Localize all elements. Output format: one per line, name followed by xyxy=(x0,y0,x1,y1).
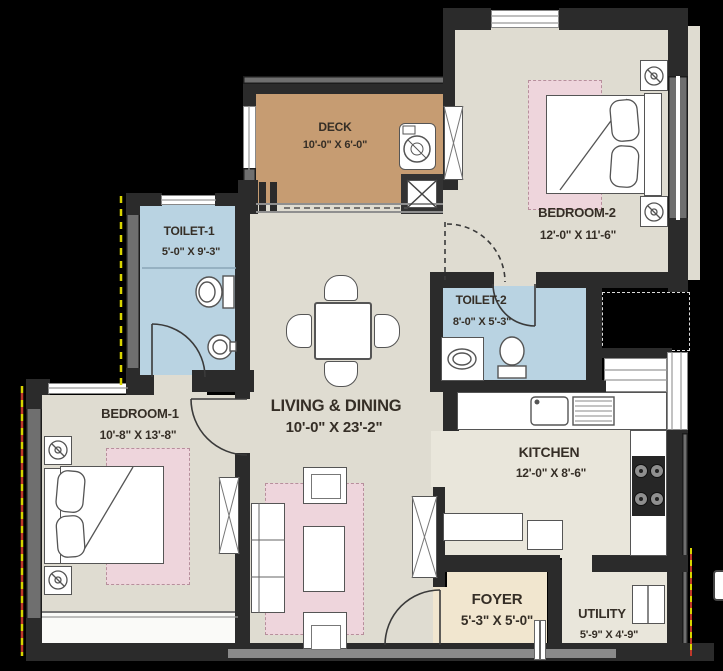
bedroom1-label: BEDROOM-1 xyxy=(101,407,179,420)
wall-segment xyxy=(602,348,672,358)
bedroom1-headboard xyxy=(44,468,61,564)
utility-window xyxy=(632,585,665,624)
bedroom2-bottom-wall xyxy=(536,272,688,288)
bedroom1-left-wall xyxy=(26,383,42,647)
toilet2-door-opening xyxy=(494,272,536,286)
wall-segment xyxy=(26,383,42,409)
kitchen-counter xyxy=(527,520,563,550)
cropped-marker-icon xyxy=(713,570,723,601)
utility-label: UTILITY xyxy=(578,607,626,620)
bedroom2-label: BEDROOM-2 xyxy=(538,206,616,219)
wall-segment xyxy=(126,193,140,215)
floor-trap-icon xyxy=(407,180,437,208)
floor-plan: DECK 10'-0" X 6'-0" BEDROOM-2 12'-0" X 1… xyxy=(0,0,723,671)
deck-dims: 10'-0" X 6'-0" xyxy=(303,140,367,151)
toilet2-right-wall xyxy=(586,284,602,384)
kitchen-counter xyxy=(443,513,523,541)
toilet2-label: TOILET-2 xyxy=(456,294,507,306)
main-door-leaf xyxy=(540,620,546,660)
dining-chair xyxy=(374,314,400,348)
foyer-top-wall xyxy=(433,555,560,572)
kitchen-right-window xyxy=(667,352,688,430)
armchair-cushion xyxy=(311,625,341,650)
nightstand xyxy=(44,436,72,465)
armchair-cushion xyxy=(311,474,341,499)
toilet2-counter xyxy=(441,337,484,381)
dining-chair xyxy=(324,275,358,301)
bedroom2-top-window xyxy=(491,10,559,28)
foyer-right-wall xyxy=(548,560,562,648)
dining-chair xyxy=(324,361,358,387)
living-label: LIVING & DINING xyxy=(271,398,402,415)
foyer-floor xyxy=(447,572,547,648)
bottom-wall-window xyxy=(228,649,616,658)
utility-door-opening xyxy=(562,553,592,573)
bedroom2-door-opening xyxy=(443,184,457,276)
bedroom2-bed xyxy=(546,95,646,194)
bedroom2-dims: 12'-0" X 11'-6" xyxy=(540,229,616,241)
utility-dims: 5'-9" X 4'-9" xyxy=(580,630,638,641)
slider-post xyxy=(270,182,277,213)
main-door-opening xyxy=(433,587,447,645)
kitchen-label: KITCHEN xyxy=(519,445,580,459)
kitchen-passage-floor xyxy=(431,431,445,487)
slider-post xyxy=(259,182,266,213)
bedroom2-headboard xyxy=(644,93,662,196)
wall-segment xyxy=(126,379,154,395)
kitchen-counter xyxy=(630,430,667,556)
foyer-dims: 5'-3" X 5'-0" xyxy=(461,614,533,628)
kitchen-dims: 12'-0" X 8'-6" xyxy=(516,467,586,479)
toilet1-left-wall xyxy=(126,193,140,391)
bedroom1-window-bay xyxy=(42,611,238,646)
utility-top-wall xyxy=(592,555,688,572)
deck-left-window xyxy=(243,106,256,170)
nightstand xyxy=(640,60,668,91)
bedroom1-dims: 10'-8" X 13'-8" xyxy=(100,429,177,441)
wardrobe-icon xyxy=(444,106,463,180)
washing-machine-icon xyxy=(399,123,436,170)
nightstand xyxy=(640,196,668,227)
coffee-table xyxy=(303,526,345,592)
toilet2-dims: 8'-0" X 5'-3" xyxy=(453,317,511,328)
wall-segment xyxy=(668,8,688,78)
bedroom1-bed xyxy=(60,466,164,564)
bedroom1-top-window xyxy=(48,383,128,394)
bedroom2-right-window xyxy=(668,76,688,220)
tv-unit xyxy=(412,496,437,578)
dining-chair xyxy=(286,314,312,348)
exterior-notch xyxy=(602,292,690,351)
living-west-wall xyxy=(235,193,250,399)
kitchen-vent-window xyxy=(604,358,667,392)
wall-segment xyxy=(243,76,445,84)
bedroom1-door-opening xyxy=(235,399,250,453)
sofa xyxy=(251,503,285,613)
deck-top-wall xyxy=(243,84,445,94)
wall-segment xyxy=(682,433,688,645)
dining-table xyxy=(314,302,372,360)
toilet1-window xyxy=(161,195,216,205)
toilet1-label: TOILET-1 xyxy=(164,225,215,237)
foyer-label: FOYER xyxy=(472,592,523,607)
kitchen-counter xyxy=(457,392,667,430)
living-dims: 10'-0" X 23'-2" xyxy=(286,420,383,435)
deck-label: DECK xyxy=(318,121,351,133)
wall-segment xyxy=(243,84,256,108)
nightstand xyxy=(44,566,72,595)
toilet1-dims: 5'-0" X 9'-3" xyxy=(162,247,220,258)
wardrobe-icon xyxy=(219,477,239,554)
